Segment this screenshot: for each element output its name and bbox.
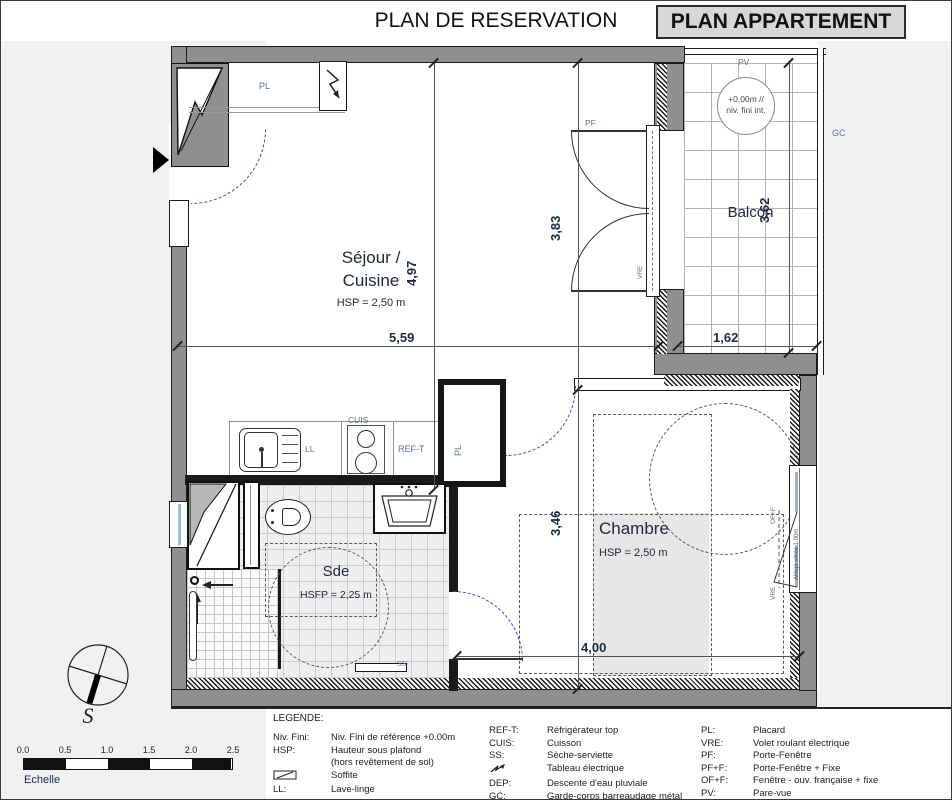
off-tag: OF+F xyxy=(767,507,780,524)
legend-desc: (hors revêtement de sol) xyxy=(331,757,434,770)
ll-tag: LL xyxy=(305,444,314,454)
compass-icon xyxy=(58,639,140,711)
legend-abbr: CUIS: xyxy=(489,738,547,751)
legend-desc: Volet roulant électrique xyxy=(753,738,850,751)
legend-abbr: DEP: xyxy=(489,778,547,791)
scale-tick-3: 1.5 xyxy=(137,745,161,755)
legend-row: PF+F:Porte-Fenêtre + Fixe xyxy=(701,763,941,776)
legend-desc: Soffite xyxy=(331,770,358,785)
ss-tag: SS xyxy=(397,661,406,668)
legend-row: CUIS:Cuisson xyxy=(489,738,699,751)
legend-abbr xyxy=(273,757,331,770)
legend-abbr: REF-T: xyxy=(489,725,547,738)
sde-window-glazing xyxy=(178,504,181,545)
floorplan-page: PLAN DE RESERVATION PLAN APPARTEMENT +0.… xyxy=(0,0,952,800)
drainer-line-1 xyxy=(282,435,298,436)
washbasin xyxy=(373,483,446,534)
chambre-label: Chambre xyxy=(599,519,669,539)
slope-arrow-left-shaft xyxy=(209,584,233,586)
legend-desc: Garde-corps barreaudage métal xyxy=(547,791,682,800)
legend-desc: Tableau électrique xyxy=(547,763,624,779)
legend-desc: Descente d'eau pluviale xyxy=(547,778,648,791)
scale-seg xyxy=(24,759,66,769)
legend-desc: Lave-linge xyxy=(331,784,375,797)
sde-label: Sde xyxy=(291,563,381,580)
legend-row: REF-T:Réfrigérateur top xyxy=(489,725,699,738)
burner-2 xyxy=(355,452,377,474)
sink-faucet-stem xyxy=(261,452,263,467)
pf-tag: PF xyxy=(585,118,596,128)
shower-drain xyxy=(190,576,199,585)
drainer-line-3 xyxy=(282,453,298,454)
plan-appartement-badge[interactable]: PLAN APPARTEMENT xyxy=(656,5,906,39)
legend-row: SS:Sèche-serviette xyxy=(489,750,699,763)
garde-corps-line xyxy=(817,48,824,375)
electrical-panel xyxy=(319,61,347,111)
scale-tick-0: 0.0 xyxy=(11,745,35,755)
counter-divider-2 xyxy=(393,421,394,478)
legend-abbr: OF+F: xyxy=(701,775,753,788)
legend-col-2: REF-T:Réfrigérateur top CUIS:Cuisson SS:… xyxy=(489,725,699,800)
chambre-closet-tag: PL xyxy=(452,445,465,456)
dim-line-right-chain xyxy=(578,63,579,691)
legend-row: PF:Porte-Fenêtre xyxy=(701,750,941,763)
wall-top xyxy=(171,46,685,63)
cuis-tag: CUIS xyxy=(348,415,368,425)
legend-row: GC:Garde-corps barreaudage métal xyxy=(489,791,699,800)
wall-sde-chambre-lower xyxy=(449,659,458,691)
legend-desc: Porte-Fenêtre + Fixe xyxy=(753,763,840,776)
wall-bottom xyxy=(171,689,817,707)
sejour-label-2: Cuisine xyxy=(301,271,441,291)
sde-hsfp: HSFP = 2,25 m xyxy=(276,589,396,601)
entry-jamb xyxy=(169,200,189,247)
sejour-label-1: Séjour / xyxy=(301,248,441,268)
legend-row: VRE:Volet roulant électrique xyxy=(701,738,941,751)
legend-row: Niv. Fini:Niv. Fini de référence +0.00m xyxy=(273,732,483,745)
legend-divider xyxy=(171,707,951,709)
chambre-hsp: HSP = 2,50 m xyxy=(599,547,668,559)
entry-arrow-icon xyxy=(153,147,169,173)
electric-symbol xyxy=(489,763,547,779)
window-vre-tag: VRE xyxy=(767,587,780,600)
legend-abbr: PF+F: xyxy=(701,763,753,776)
allege-note: Allège vitrée 1.00m xyxy=(791,529,804,580)
scale-label: Echelle xyxy=(24,774,60,786)
page-title: PLAN DE RESERVATION xyxy=(341,9,651,33)
scale-tick-5: 2.5 xyxy=(221,745,245,755)
wall-sde-chambre-upper xyxy=(449,478,458,592)
dim-sejour-w: 5,59 xyxy=(389,330,414,345)
toilet-dot-2 xyxy=(271,521,274,524)
legend-row: (hors revêtement de sol) xyxy=(273,757,483,770)
pf-vre-tag: VRE xyxy=(634,266,647,279)
dim-sejour-h: 4,97 xyxy=(405,261,418,286)
electric-bolt-icon xyxy=(320,63,345,109)
legend-row: HSP:Hauteur sous plafond xyxy=(273,745,483,758)
site-background-right xyxy=(817,41,952,707)
legend-col-3: PL:Placard VRE:Volet roulant électrique … xyxy=(701,725,941,800)
legend-abbr: VRE: xyxy=(701,738,753,751)
level-marker-line2: niv. fini int. xyxy=(718,105,774,116)
legend-desc: Pare-vue xyxy=(753,788,792,800)
compass-south-label: S xyxy=(73,703,103,729)
scale-tick-1: 0.5 xyxy=(53,745,77,755)
hatch-balcony-upper xyxy=(657,64,667,130)
toilet-seat xyxy=(282,508,301,526)
shower-glass-inner-line xyxy=(250,485,251,565)
legend-row: DEP:Descente d'eau pluviale xyxy=(489,778,699,791)
chambre-closet xyxy=(438,379,506,487)
sde-door-leaf xyxy=(453,658,523,660)
pare-vue-line xyxy=(684,48,826,55)
scale-tick-2: 1.0 xyxy=(95,745,119,755)
scale-seg xyxy=(192,759,231,769)
legend-abbr: Niv. Fini: xyxy=(273,732,331,745)
legend-desc: Sèche-serviette xyxy=(547,750,613,763)
dim-chambre-w: 4,00 xyxy=(581,640,606,655)
drainer-line-2 xyxy=(282,444,298,445)
legend-desc: Placard xyxy=(753,725,785,738)
dim-line-sejour-w xyxy=(178,346,659,347)
legend-row: Tableau électrique xyxy=(489,763,699,779)
sejour-hsp: HSP = 2,50 m xyxy=(301,297,441,309)
scale-tick-4: 2.0 xyxy=(179,745,203,755)
dim-chambre-h: 3,46 xyxy=(549,511,562,536)
soffite-symbol xyxy=(273,770,331,785)
legend-desc: Fenêtre - ouv. française + fixe xyxy=(753,775,878,788)
dim-pf-h: 3,83 xyxy=(549,216,562,241)
legend-abbr: PF: xyxy=(701,750,753,763)
dim-line-balcon-w xyxy=(678,346,817,347)
hatch-chambre-top xyxy=(664,375,799,386)
ref-tag: REF-T xyxy=(398,444,425,454)
legend-abbr: GC: xyxy=(489,791,547,800)
legend-row: LL:Lave-linge xyxy=(273,784,483,797)
legend-abbr: PL: xyxy=(701,725,753,738)
legend-abbr: LL: xyxy=(273,784,331,797)
burner-1 xyxy=(357,430,375,448)
legend-row: PV:Pare-vue xyxy=(701,788,941,800)
legend-desc: Réfrigérateur top xyxy=(547,725,618,738)
level-marker: +0.00m // niv. fini int. xyxy=(717,77,775,135)
dim-line-balcon-h xyxy=(789,63,790,353)
shower-tray xyxy=(187,481,240,570)
hatch-bottom xyxy=(187,678,799,689)
legend-row: Soffite xyxy=(273,770,483,785)
pf-door-closed-line xyxy=(652,131,654,291)
gc-tag: GC xyxy=(832,128,846,138)
legend-desc: Cuisson xyxy=(547,738,581,751)
scale-seg xyxy=(150,759,192,769)
sde-window xyxy=(169,501,189,548)
wall-balcony-bottom xyxy=(654,353,817,375)
legend-col-1: Niv. Fini:Niv. Fini de référence +0.00m … xyxy=(273,732,483,797)
scale-seg xyxy=(66,759,108,769)
legend-abbr: SS: xyxy=(489,750,547,763)
towel-rail xyxy=(189,591,197,661)
legend-row: PL:Placard xyxy=(701,725,941,738)
dim-line-chambre-w xyxy=(457,656,800,657)
shower-glass-panel xyxy=(243,481,260,569)
dim-balcon-h: 3,62 xyxy=(758,198,771,223)
legend-desc: Hauteur sous plafond xyxy=(331,745,421,758)
toilet-dot-1 xyxy=(271,509,274,512)
drainer-line-4 xyxy=(282,462,298,463)
scale-seg xyxy=(108,759,150,769)
hatch-right-lower xyxy=(790,593,799,689)
pv-tag: PV xyxy=(738,57,749,67)
legend-desc: Niv. Fini de référence +0.00m xyxy=(331,732,455,745)
legend-desc: Porte-Fenêtre xyxy=(753,750,812,763)
dim-balcon-w: 1,62 xyxy=(713,330,738,345)
legend-abbr: HSP: xyxy=(273,745,331,758)
counter-divider-1 xyxy=(341,421,342,478)
legend-row: OF+F:Fenêtre - ouv. française + fixe xyxy=(701,775,941,788)
balcon-label: Balcon xyxy=(684,204,817,221)
slope-arrow-left-head xyxy=(202,581,211,589)
level-marker-line1: +0.00m // xyxy=(718,94,774,105)
scale-bar xyxy=(23,758,233,770)
entry-closet-tag: PL xyxy=(259,81,270,91)
dim-line-sejour-h xyxy=(434,63,435,490)
legend-abbr: PV: xyxy=(701,788,753,800)
legend-heading: LEGENDE: xyxy=(273,713,324,724)
